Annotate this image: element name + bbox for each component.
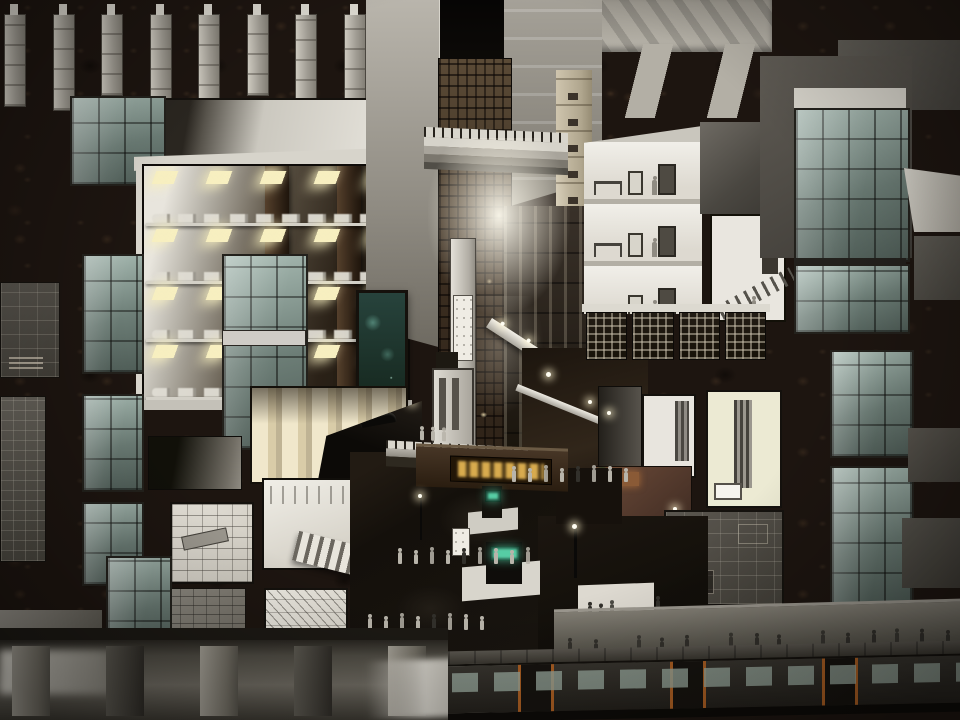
drawing-detail bbox=[738, 524, 768, 544]
garage-light-strip bbox=[152, 229, 397, 242]
glass-shaft-left-1 bbox=[82, 254, 144, 374]
pedestrian bbox=[592, 469, 596, 482]
glass-elevator-shaft bbox=[794, 108, 910, 262]
gray-lineart-panel-upper bbox=[0, 282, 60, 378]
scene-canvas: Architectural sectional perspective — un… bbox=[0, 0, 960, 720]
plaza-crowd-upper bbox=[512, 466, 634, 482]
office-person bbox=[652, 242, 657, 257]
metro-train bbox=[448, 641, 960, 720]
street-lamp bbox=[420, 498, 422, 540]
gray-box-right-1 bbox=[914, 236, 960, 300]
foundation-pile bbox=[344, 14, 366, 111]
gray-box-right-2 bbox=[908, 428, 960, 482]
foundation-pile bbox=[198, 14, 220, 107]
desk bbox=[594, 243, 622, 257]
platform-pillar bbox=[12, 646, 50, 716]
desk bbox=[594, 181, 622, 195]
pedestrian bbox=[446, 554, 450, 564]
foundation-pile bbox=[4, 14, 26, 107]
pedestrian bbox=[494, 552, 498, 564]
platform-pillars bbox=[12, 646, 426, 716]
pedestrian bbox=[442, 431, 446, 441]
pedestrian bbox=[478, 551, 482, 564]
glass-transom-band bbox=[222, 330, 306, 346]
pedestrian bbox=[576, 470, 580, 482]
retail-counter-sketch bbox=[170, 502, 254, 584]
metro-entrance-pylon-1 bbox=[482, 486, 502, 518]
pedestrian bbox=[448, 617, 452, 630]
mezzanine-crowd bbox=[420, 430, 446, 441]
elevator-hoist bbox=[436, 352, 458, 368]
curtain-room-large bbox=[706, 390, 782, 508]
pedestrian bbox=[624, 472, 628, 482]
light-dot bbox=[500, 321, 506, 327]
pedestrian bbox=[526, 551, 530, 564]
pedestrian bbox=[462, 552, 466, 564]
door bbox=[658, 226, 676, 257]
lattice-panel bbox=[586, 312, 627, 360]
metro-sign-green bbox=[485, 490, 501, 502]
platform-pillar bbox=[294, 646, 332, 716]
pedestrian bbox=[560, 472, 564, 482]
glass-box-upper bbox=[830, 350, 914, 458]
pedestrian bbox=[431, 431, 435, 441]
office-floor bbox=[584, 142, 702, 204]
glass-shaft-left-2 bbox=[82, 394, 144, 492]
cabinet bbox=[628, 233, 643, 257]
light-dot bbox=[526, 338, 532, 344]
white-slab-wedge bbox=[904, 168, 960, 232]
lattice-panel bbox=[679, 312, 720, 360]
dark-room bbox=[598, 386, 642, 472]
foundation-pile bbox=[101, 14, 123, 96]
plaza-crowd-mid bbox=[398, 548, 568, 564]
glass-shaft-cap bbox=[794, 88, 906, 108]
pedestrian bbox=[528, 472, 532, 482]
light-dot bbox=[588, 400, 592, 404]
pedestrian bbox=[480, 620, 484, 630]
light-dot bbox=[607, 411, 611, 415]
pedestrian bbox=[414, 554, 418, 564]
foundation-pile-row bbox=[4, 14, 366, 111]
pedestrian bbox=[464, 618, 468, 630]
dark-interior-room bbox=[148, 436, 242, 490]
office-floor bbox=[584, 204, 702, 266]
lattice-panel bbox=[632, 312, 673, 360]
garage-car-row bbox=[152, 214, 378, 223]
gray-box-right-3 bbox=[902, 518, 960, 588]
platform-beam bbox=[0, 628, 448, 640]
foundation-pile bbox=[295, 14, 317, 102]
door bbox=[658, 164, 676, 195]
pedestrian bbox=[608, 470, 612, 482]
office-person bbox=[652, 180, 657, 195]
elevator-doors bbox=[439, 378, 463, 430]
platform-pillar bbox=[106, 646, 144, 716]
glass-elevator-shaft-lower bbox=[794, 264, 910, 334]
platform-pillar bbox=[200, 646, 238, 716]
cabinet bbox=[628, 171, 643, 195]
light-dot bbox=[546, 372, 551, 377]
lattice-panel bbox=[725, 312, 766, 360]
lamp-head bbox=[418, 494, 422, 498]
foundation-pile bbox=[247, 14, 269, 96]
pedestrian bbox=[398, 552, 402, 564]
shelf-lines bbox=[9, 355, 43, 369]
atrium-bridge bbox=[424, 127, 568, 179]
street-lamp bbox=[574, 528, 577, 578]
counter-drawing bbox=[181, 527, 229, 550]
bed bbox=[714, 483, 742, 500]
office-floors bbox=[584, 142, 702, 328]
pedestrian bbox=[544, 469, 548, 482]
gray-lineart-panel-lower bbox=[0, 396, 46, 562]
pedestrian bbox=[512, 470, 516, 482]
pedestrian bbox=[430, 551, 434, 564]
garage-light-strip bbox=[152, 171, 397, 184]
pedestrian bbox=[420, 430, 424, 440]
lattice-sill-top bbox=[582, 304, 770, 312]
pedestrian bbox=[510, 554, 514, 564]
curtain bbox=[675, 401, 689, 461]
office-section-block bbox=[584, 126, 702, 314]
lattice-screen-row bbox=[582, 312, 770, 362]
curtain bbox=[734, 400, 752, 488]
lamp-head bbox=[572, 524, 577, 529]
